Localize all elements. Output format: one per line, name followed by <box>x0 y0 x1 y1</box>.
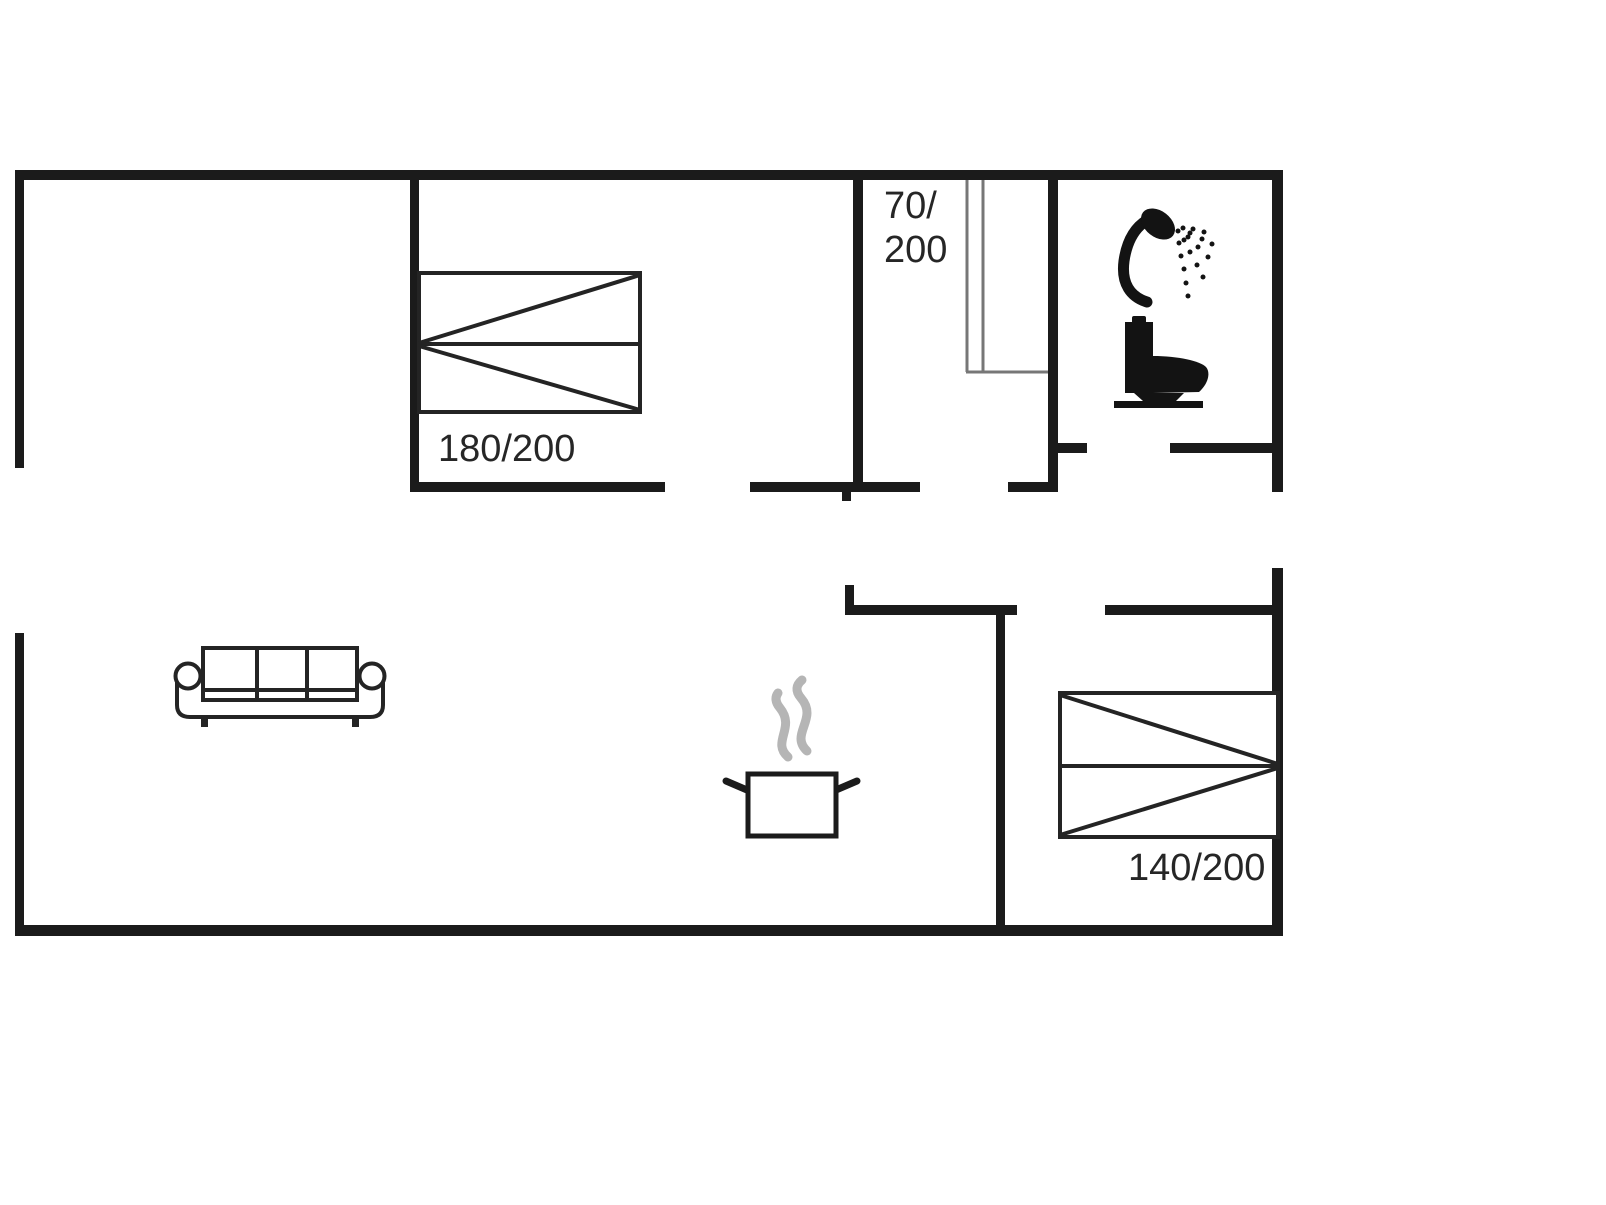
toilet-base <box>1114 401 1203 408</box>
wall-upper-bottom-a <box>410 482 665 492</box>
pot-body <box>748 774 836 836</box>
wall-kitchen-divider <box>996 605 1005 925</box>
wall-bathroom-bottom-right <box>1170 443 1283 453</box>
sofa-icon <box>176 648 385 727</box>
wall-room70-left <box>853 175 863 492</box>
double-bed-icon-small <box>1060 693 1278 837</box>
sofa-foot-right <box>352 717 359 727</box>
toilet-icon <box>1114 316 1208 408</box>
wall-bathroom-bottom-left <box>1048 443 1087 453</box>
wall-doorpost-down <box>842 492 851 501</box>
wall-left-lower <box>15 633 24 936</box>
label-bed-large: 180/200 <box>438 428 575 470</box>
wall-bottom <box>15 925 1283 936</box>
sofa-arm-right <box>360 664 385 689</box>
wall-doorpost-up <box>845 585 854 605</box>
steam-wisp-right <box>797 680 807 751</box>
toilet-bowl <box>1153 356 1208 393</box>
wall-lower-top-b <box>1105 605 1283 615</box>
label-closet-bottom: 200 <box>884 229 947 271</box>
cooking-pot-icon <box>726 774 857 836</box>
sofa-arm-left <box>176 664 201 689</box>
sofa-cushions <box>203 648 357 700</box>
floor-plan: 70/ 200 180/200 140/200 <box>0 0 1606 1205</box>
steam-icon <box>776 680 807 757</box>
toilet-pedestal <box>1134 393 1184 401</box>
wall-top <box>15 170 1283 180</box>
pot-handle-left <box>726 781 747 790</box>
shower-icon <box>1123 202 1214 302</box>
wardrobe-icon <box>966 180 1048 372</box>
label-closet-top: 70/ <box>884 185 937 227</box>
double-bed-icon-large <box>419 273 640 412</box>
shower-handle <box>1123 219 1149 302</box>
wall-left-upper <box>15 170 24 468</box>
shower-spray-dots <box>1176 226 1215 299</box>
wall-upper-bottom-c <box>1008 482 1058 492</box>
sofa-foot-left <box>201 717 208 727</box>
steam-wisp-left <box>776 693 788 757</box>
pot-handle-right <box>836 781 857 790</box>
toilet-tank <box>1125 322 1153 393</box>
label-bed-small: 140/200 <box>1128 847 1265 889</box>
wall-upper-bottom-b <box>750 482 920 492</box>
wall-lower-top-a <box>845 605 1017 615</box>
